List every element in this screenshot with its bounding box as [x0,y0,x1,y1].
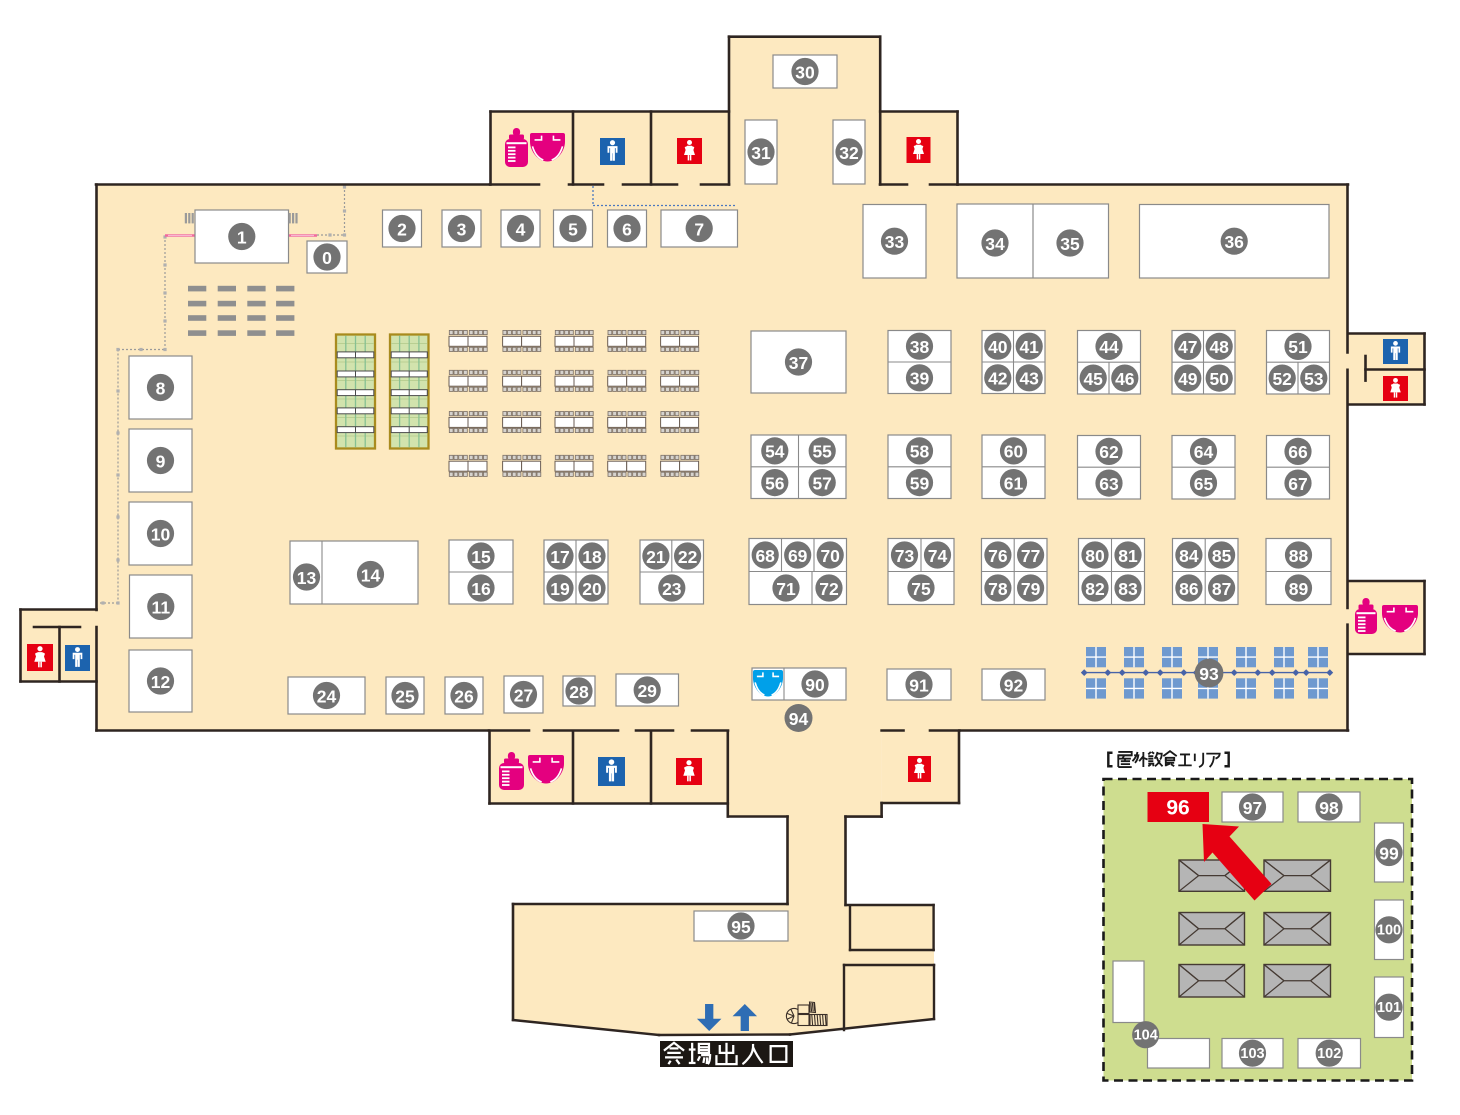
svg-text:41: 41 [1019,337,1039,357]
svg-text:17: 17 [550,547,569,567]
svg-text:80: 80 [1085,546,1105,566]
svg-text:55: 55 [812,442,832,462]
svg-text:9: 9 [156,451,166,471]
svg-text:74: 74 [928,546,948,566]
svg-text:10: 10 [151,524,171,544]
svg-text:75: 75 [911,579,931,599]
svg-text:3: 3 [457,219,467,239]
svg-text:85: 85 [1212,546,1232,566]
svg-text:61: 61 [1004,473,1024,493]
svg-text:47: 47 [1178,337,1197,357]
svg-text:101: 101 [1377,1000,1401,1016]
svg-text:68: 68 [755,546,775,566]
svg-text:39: 39 [910,369,930,389]
svg-text:14: 14 [361,565,381,585]
svg-text:18: 18 [582,547,602,567]
svg-text:90: 90 [805,675,825,695]
svg-text:40: 40 [988,337,1008,357]
svg-text:100: 100 [1377,923,1401,939]
svg-text:0: 0 [322,248,332,268]
svg-text:21: 21 [646,547,666,567]
svg-text:33: 33 [885,232,905,252]
svg-text:46: 46 [1115,369,1135,389]
svg-text:50: 50 [1209,369,1229,389]
svg-text:12: 12 [151,672,171,692]
svg-text:86: 86 [1179,579,1199,599]
svg-text:78: 78 [988,579,1008,599]
svg-text:20: 20 [582,579,602,599]
svg-text:35: 35 [1060,234,1080,254]
svg-text:36: 36 [1224,232,1244,252]
svg-text:53: 53 [1304,369,1324,389]
svg-text:70: 70 [820,546,840,566]
svg-text:15: 15 [471,547,491,567]
svg-text:91: 91 [909,675,929,695]
svg-text:63: 63 [1099,474,1119,494]
svg-text:65: 65 [1194,474,1214,494]
svg-text:94: 94 [789,709,809,729]
svg-text:43: 43 [1019,369,1039,389]
svg-text:59: 59 [910,473,930,493]
svg-text:99: 99 [1379,843,1399,863]
svg-text:42: 42 [988,369,1008,389]
svg-text:44: 44 [1099,337,1119,357]
svg-text:82: 82 [1085,579,1105,599]
svg-text:13: 13 [297,568,317,588]
svg-text:56: 56 [765,473,785,493]
svg-text:103: 103 [1240,1046,1264,1062]
svg-text:6: 6 [622,219,632,239]
svg-text:16: 16 [471,579,491,599]
svg-text:93: 93 [1199,664,1219,684]
svg-text:52: 52 [1272,369,1292,389]
svg-text:87: 87 [1212,579,1231,599]
svg-text:25: 25 [395,686,415,706]
svg-text:89: 89 [1289,579,1309,599]
svg-text:51: 51 [1288,337,1308,357]
svg-text:8: 8 [156,378,166,398]
svg-text:37: 37 [789,353,808,373]
svg-text:5: 5 [568,219,578,239]
svg-text:72: 72 [819,579,839,599]
svg-text:54: 54 [765,442,785,462]
svg-text:19: 19 [550,579,570,599]
svg-text:83: 83 [1118,579,1138,599]
svg-text:77: 77 [1021,546,1040,566]
svg-text:49: 49 [1178,369,1198,389]
svg-text:26: 26 [454,686,474,706]
svg-text:92: 92 [1004,675,1024,695]
svg-text:62: 62 [1099,442,1119,462]
svg-text:69: 69 [788,546,808,566]
svg-text:28: 28 [569,682,589,702]
svg-text:79: 79 [1021,579,1041,599]
svg-text:31: 31 [751,143,771,163]
svg-text:73: 73 [895,546,915,566]
svg-text:67: 67 [1288,474,1307,494]
svg-text:104: 104 [1134,1028,1158,1044]
svg-text:24: 24 [317,686,337,706]
svg-text:23: 23 [662,579,682,599]
svg-text:66: 66 [1288,442,1308,462]
svg-text:22: 22 [678,547,698,567]
svg-text:98: 98 [1319,798,1339,818]
svg-text:4: 4 [516,219,526,239]
svg-text:84: 84 [1179,546,1199,566]
svg-text:95: 95 [731,917,751,937]
svg-text:97: 97 [1243,798,1262,818]
svg-text:2: 2 [397,219,407,239]
svg-text:45: 45 [1083,369,1103,389]
svg-text:7: 7 [694,219,704,239]
svg-text:29: 29 [637,681,657,701]
svg-text:48: 48 [1209,337,1229,357]
svg-text:27: 27 [514,685,533,705]
svg-text:60: 60 [1004,442,1024,462]
svg-text:32: 32 [839,143,859,163]
svg-text:71: 71 [776,579,796,599]
svg-text:76: 76 [988,546,1008,566]
svg-text:1: 1 [237,227,247,247]
svg-text:38: 38 [910,337,930,357]
svg-text:11: 11 [152,597,171,617]
svg-text:64: 64 [1194,442,1214,462]
svg-text:96: 96 [1166,797,1189,820]
svg-text:58: 58 [910,442,930,462]
svg-text:30: 30 [795,62,815,82]
svg-text:102: 102 [1317,1046,1341,1062]
svg-text:57: 57 [812,473,831,493]
svg-text:88: 88 [1289,546,1309,566]
svg-text:81: 81 [1118,546,1138,566]
svg-text:34: 34 [985,234,1005,254]
